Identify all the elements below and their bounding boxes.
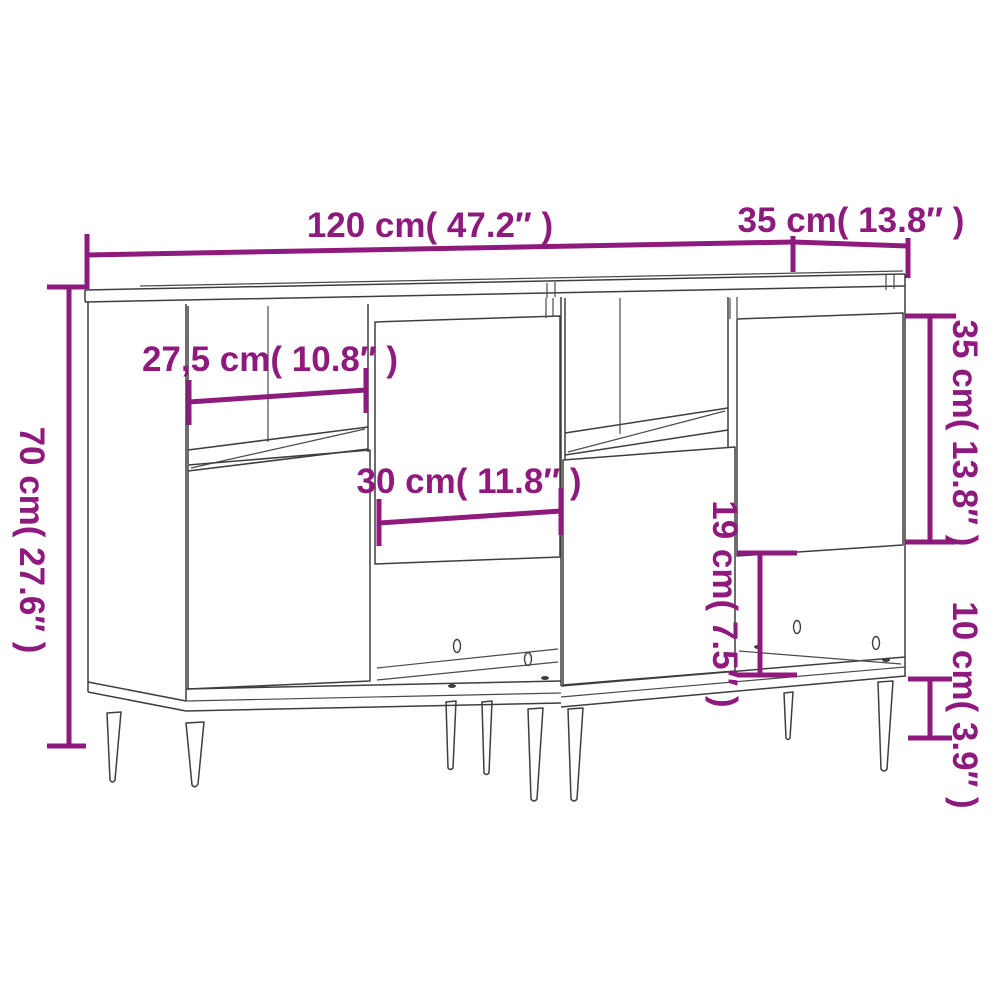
dimension-label-door-height: 35 cm( 13.8″ ) bbox=[945, 320, 984, 547]
dimension-label-compartment-height: 19 cm( 7.5″ ) bbox=[705, 500, 744, 707]
dimension-depth: 35 cm( 13.8″ ) bbox=[738, 201, 965, 278]
dimension-total-height: 70 cm( 27.6″ ) bbox=[12, 287, 86, 747]
dimension-label-shelf-width: 27,5 cm( 10.8″ ) bbox=[142, 340, 398, 379]
left-unit-lower-door bbox=[188, 450, 370, 689]
cable-hole bbox=[525, 653, 532, 666]
dimension-door-width: 30 cm( 11.8″ ) bbox=[357, 462, 582, 546]
furniture-dimension-diagram: 120 cm( 47.2″ ) 35 cm( 13.8″ ) 70 cm( 27… bbox=[0, 0, 1000, 1000]
left-unit-tall-door bbox=[375, 316, 560, 564]
dimension-label-door-width: 30 cm( 11.8″ ) bbox=[357, 462, 582, 501]
dimension-label-leg-height: 10 cm( 3.9″ ) bbox=[945, 601, 984, 808]
dimension-leg-height: 10 cm( 3.9″ ) bbox=[908, 601, 984, 808]
top-panel bbox=[85, 271, 905, 302]
tapered-legs bbox=[107, 681, 893, 801]
cable-hole bbox=[794, 621, 801, 634]
cable-hole bbox=[873, 637, 880, 650]
dimension-annotations: 120 cm( 47.2″ ) 35 cm( 13.8″ ) 70 cm( 27… bbox=[12, 201, 984, 809]
dimension-shelf-width: 27,5 cm( 10.8″ ) bbox=[142, 340, 398, 425]
diagram-canvas: 120 cm( 47.2″ ) 35 cm( 13.8″ ) 70 cm( 27… bbox=[0, 0, 1000, 1000]
dimension-label-depth: 35 cm( 13.8″ ) bbox=[738, 201, 965, 240]
dimension-compartment-height: 19 cm( 7.5″ ) bbox=[705, 500, 797, 707]
dimension-label-total-width: 120 cm( 47.2″ ) bbox=[307, 206, 553, 245]
dimension-total-width: 120 cm( 47.2″ ) bbox=[87, 206, 793, 289]
cable-hole bbox=[454, 640, 461, 653]
right-unit-tall-door bbox=[737, 313, 903, 556]
dimension-label-total-height: 70 cm( 27.6″ ) bbox=[12, 427, 51, 654]
dimension-door-height: 35 cm( 13.8″ ) bbox=[905, 316, 984, 546]
